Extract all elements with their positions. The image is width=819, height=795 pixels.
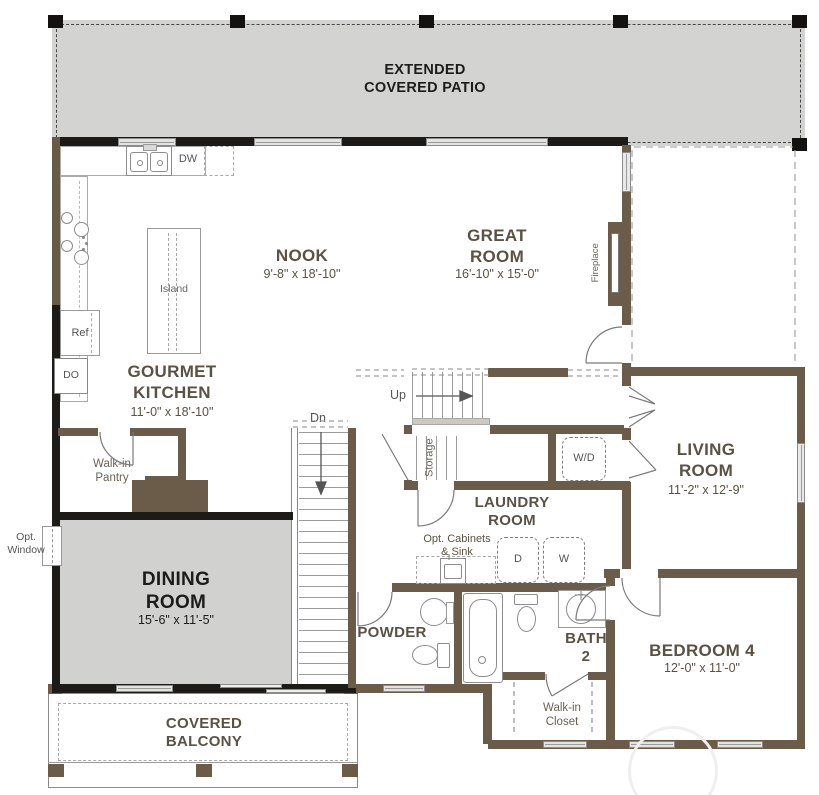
wall	[604, 569, 620, 578]
deck-dashed-border	[632, 147, 795, 364]
great-room-door	[586, 327, 622, 363]
cased-opening	[568, 370, 620, 376]
storage-door	[382, 434, 408, 480]
great-room-dims: 16'-10" x 15'-0"	[427, 267, 567, 282]
window	[622, 152, 631, 192]
fireplace-label: Fireplace	[590, 230, 602, 296]
dryer-label: D	[497, 553, 539, 566]
bath2-toilet-tank	[514, 594, 538, 605]
wall	[606, 578, 615, 586]
sink-faucet	[143, 144, 157, 151]
nook-label: NOOK	[232, 246, 372, 267]
watermark-circle	[628, 726, 718, 795]
patio-post	[48, 15, 63, 28]
wall	[52, 137, 60, 305]
great-room-label: GREAT ROOM	[437, 226, 557, 267]
powder-door	[358, 592, 392, 626]
dishwasher-label: DW	[172, 153, 204, 166]
wall	[58, 428, 98, 436]
wall	[622, 482, 631, 569]
bedroom4-dims: 12'-0" x 11'-0"	[612, 661, 792, 676]
bath2-label: BATH 2	[556, 630, 616, 667]
stair-treads	[299, 432, 349, 682]
wall	[548, 434, 556, 481]
powder-toilet-bowl	[412, 645, 438, 665]
wall	[622, 145, 631, 152]
living-room-label: LIVING ROOM	[646, 440, 766, 481]
stairs-up	[412, 368, 490, 425]
wall	[404, 425, 412, 434]
kitchen-dims: 11'-0" x 18'-10"	[92, 405, 252, 420]
opt-window-label: Opt. Window	[0, 531, 52, 557]
cooktop-burner	[74, 250, 89, 265]
balcony-post	[196, 764, 212, 777]
laundry-sink	[440, 558, 466, 584]
powder-counter	[446, 602, 454, 624]
kitchen-sink	[126, 146, 172, 176]
window	[426, 138, 548, 146]
wall	[797, 367, 805, 749]
double-oven-label: DO	[56, 369, 86, 382]
floor-plan: EXTENDED COVERED PATIO NOOK 9'-8" x 18'-…	[0, 0, 819, 795]
wall	[658, 569, 805, 578]
bath2-toilet-bowl	[517, 606, 536, 632]
dn-label: Dn	[304, 411, 332, 426]
stairs-down	[291, 428, 348, 684]
powder-label: POWDER	[332, 624, 452, 642]
patio-post	[230, 15, 245, 28]
balcony-post	[48, 764, 64, 777]
powder-toilet-tank	[437, 643, 450, 668]
open-deck-outline	[632, 147, 795, 364]
cooktop-knob	[85, 242, 88, 245]
living-room-double-door	[629, 387, 655, 427]
living-room-dims: 11'-2" x 12'-9"	[636, 483, 776, 498]
optional-window-dash	[52, 529, 54, 563]
up-label: Up	[384, 388, 412, 403]
wall	[490, 425, 624, 434]
window	[254, 138, 342, 146]
wall	[404, 481, 418, 490]
balcony-rail	[48, 762, 358, 763]
closet-label: Walk-in Closet	[522, 701, 602, 729]
hall-opening	[356, 370, 404, 376]
bedroom4-label: BEDROOM 4	[612, 641, 792, 662]
stair-treads	[412, 372, 490, 418]
laundry-door	[418, 490, 454, 526]
bedroom4-door	[622, 578, 660, 616]
window	[116, 685, 173, 692]
wall	[622, 192, 631, 325]
wall	[588, 672, 606, 680]
patio-label: EXTENDED COVERED PATIO	[315, 62, 535, 97]
sink-drain	[137, 160, 143, 166]
refrigerator-label: Ref	[62, 327, 98, 340]
wall	[628, 367, 805, 376]
wall	[52, 512, 293, 520]
pantry-label: Walk-in Pantry	[72, 457, 152, 485]
wall	[622, 428, 631, 440]
wall	[622, 368, 631, 386]
bathtub	[463, 593, 503, 683]
cooktop-knob	[82, 236, 85, 239]
wall	[454, 481, 630, 490]
cooktop-burner	[74, 222, 89, 237]
sink-drain	[157, 160, 163, 166]
sliding-door	[266, 689, 326, 693]
sliding-door	[220, 684, 282, 688]
laundry-sink-basin	[444, 564, 462, 579]
window	[717, 741, 763, 748]
powder-sink	[420, 598, 448, 626]
bathtub-drain	[478, 656, 486, 664]
storage-label: Storage	[423, 430, 436, 486]
dining-room-label: DINING ROOM	[96, 568, 256, 614]
stair-rail-line	[297, 428, 298, 684]
window	[797, 443, 805, 503]
cooktop-burner	[61, 240, 73, 252]
fireplace-firebox	[611, 233, 619, 293]
wall	[454, 592, 462, 684]
wall	[348, 428, 356, 688]
patio-post	[419, 15, 434, 28]
window	[543, 741, 587, 748]
stair-landing-edge	[412, 418, 490, 425]
laundry-label: LAUNDRY ROOM	[452, 494, 572, 531]
bathtub-inner	[469, 599, 497, 677]
washer-dryer-label: W/D	[562, 452, 606, 465]
wall	[488, 368, 568, 377]
balcony-post	[342, 764, 358, 777]
window	[383, 685, 425, 692]
balcony-label: COVERED BALCONY	[128, 715, 280, 752]
bath2-sink	[566, 594, 596, 624]
patio-post	[613, 15, 628, 28]
kitchen-label: GOURMET KITCHEN	[92, 362, 252, 403]
washer-label: W	[543, 553, 585, 566]
island-label: Island	[149, 283, 199, 296]
cooktop-knob	[82, 248, 85, 251]
patio-post	[792, 138, 807, 151]
wall	[483, 684, 492, 744]
dining-room-dims: 15'-6" x 11'-5"	[96, 613, 256, 628]
cooktop-burner	[61, 212, 73, 224]
patio-post	[792, 15, 807, 28]
opt-cabinets-label: Opt. Cabinets & Sink	[412, 533, 502, 560]
nook-dims: 9'-8" x 18'-10"	[222, 267, 382, 282]
kitchen-counter-dashed	[204, 146, 234, 176]
closet-door	[546, 674, 588, 696]
